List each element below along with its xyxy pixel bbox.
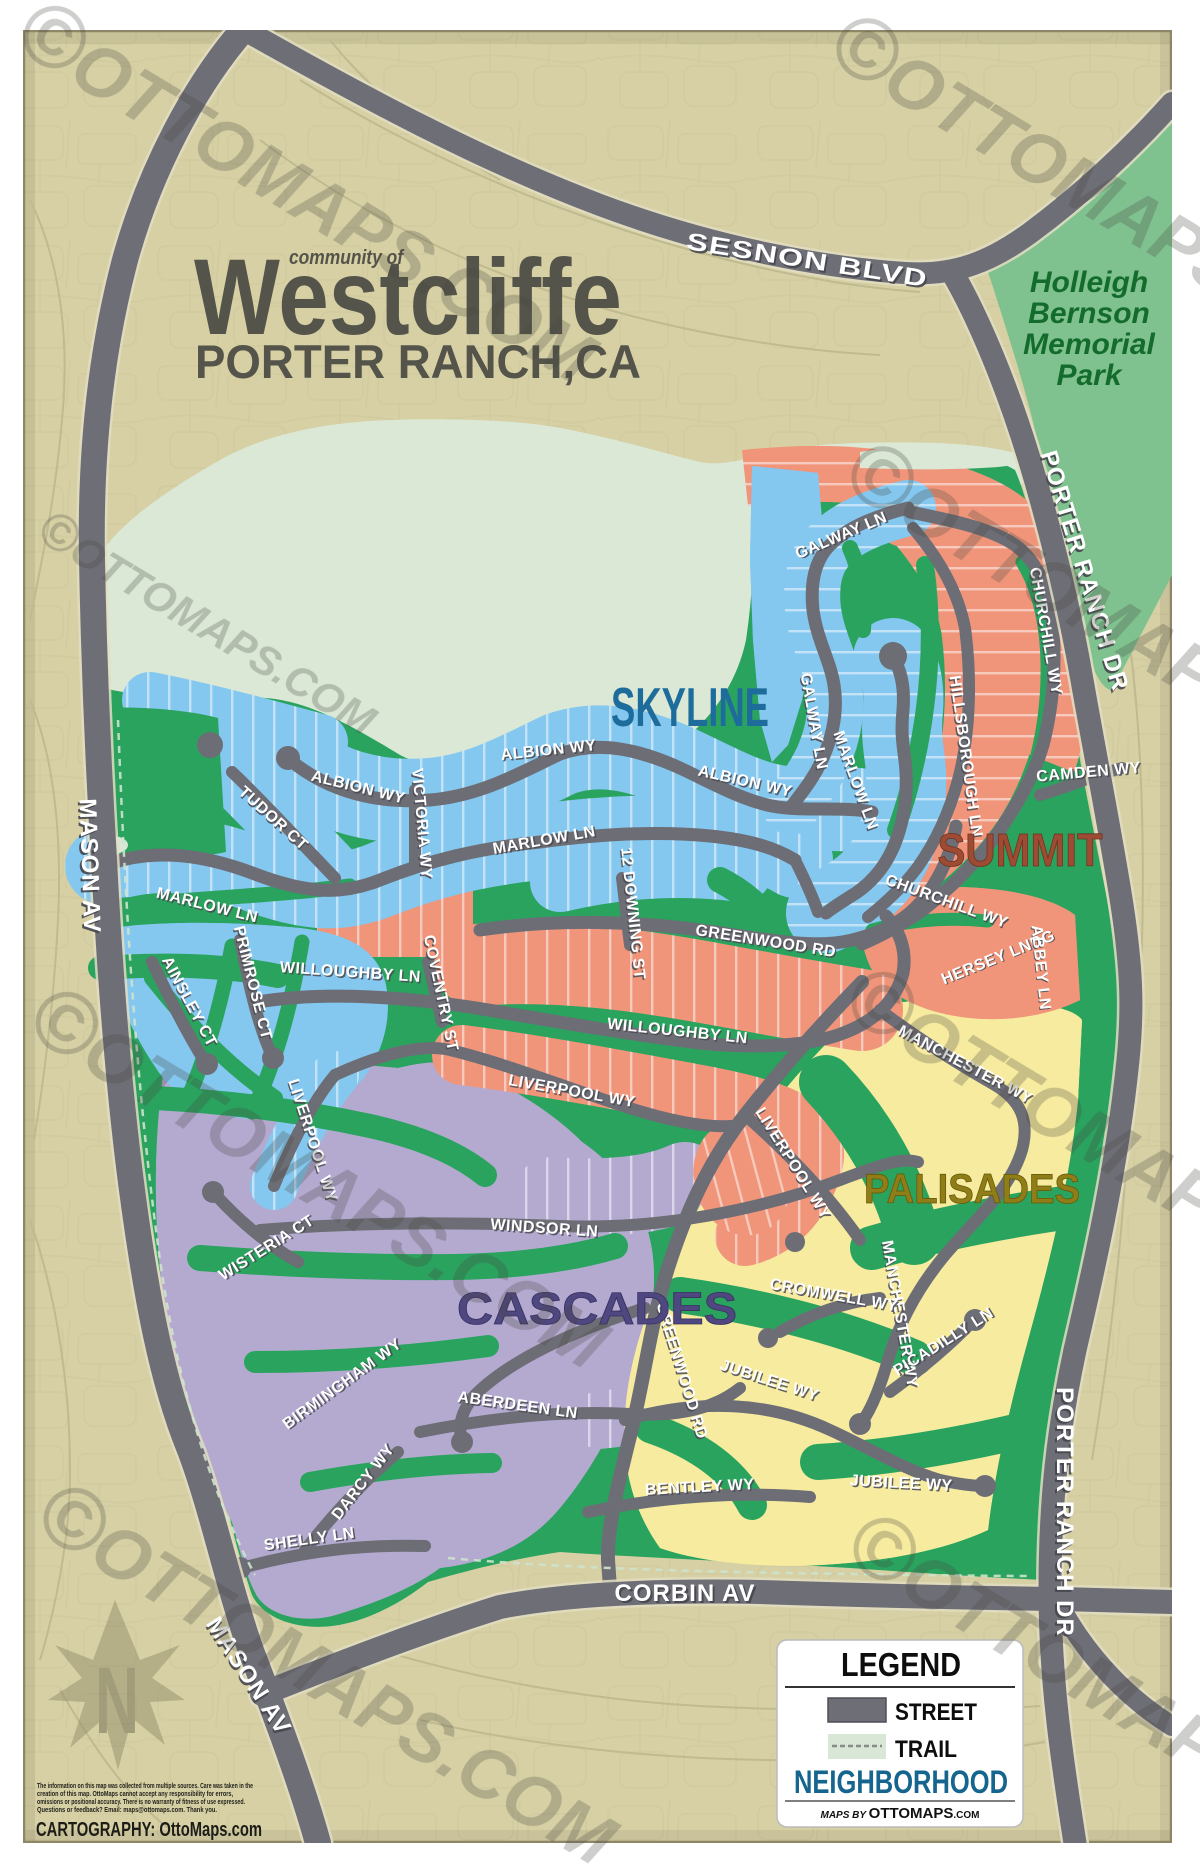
svg-text:MASON AV: MASON AV [74, 798, 106, 934]
svg-text:PALISADES: PALISADES [864, 1165, 1080, 1212]
svg-text:The information on this map wa: The information on this map was collecte… [37, 1783, 253, 1790]
svg-text:Holleigh: Holleigh [1030, 266, 1148, 299]
svg-text:CORBIN AV: CORBIN AV [615, 1580, 756, 1607]
svg-text:Bernson: Bernson [1028, 297, 1150, 330]
svg-text:Memorial: Memorial [1023, 328, 1155, 361]
svg-text:LEGEND: LEGEND [841, 1646, 961, 1683]
svg-text:CARTOGRAPHY: OttoMaps.com: CARTOGRAPHY: OttoMaps.com [36, 1819, 262, 1841]
svg-text:N: N [95, 1648, 139, 1754]
svg-text:STREET: STREET [895, 1699, 977, 1726]
svg-text:Park: Park [1056, 359, 1122, 392]
svg-text:Questions or feedback? Email:: Questions or feedback? Email: maps@ottom… [37, 1807, 217, 1814]
svg-text:NEIGHBORHOOD: NEIGHBORHOOD [794, 1764, 1008, 1800]
svg-text:SKYLINE: SKYLINE [611, 676, 769, 738]
svg-text:omissions or positional accura: omissions or positional accuracy. There … [37, 1799, 245, 1806]
svg-text:TRAIL: TRAIL [895, 1736, 957, 1763]
svg-text:PORTER RANCH DR: PORTER RANCH DR [1051, 1387, 1078, 1637]
svg-text:SUMMIT: SUMMIT [938, 824, 1103, 876]
svg-text:creation of this map. OttoMaps: creation of this map. OttoMaps cannot ac… [37, 1791, 233, 1798]
